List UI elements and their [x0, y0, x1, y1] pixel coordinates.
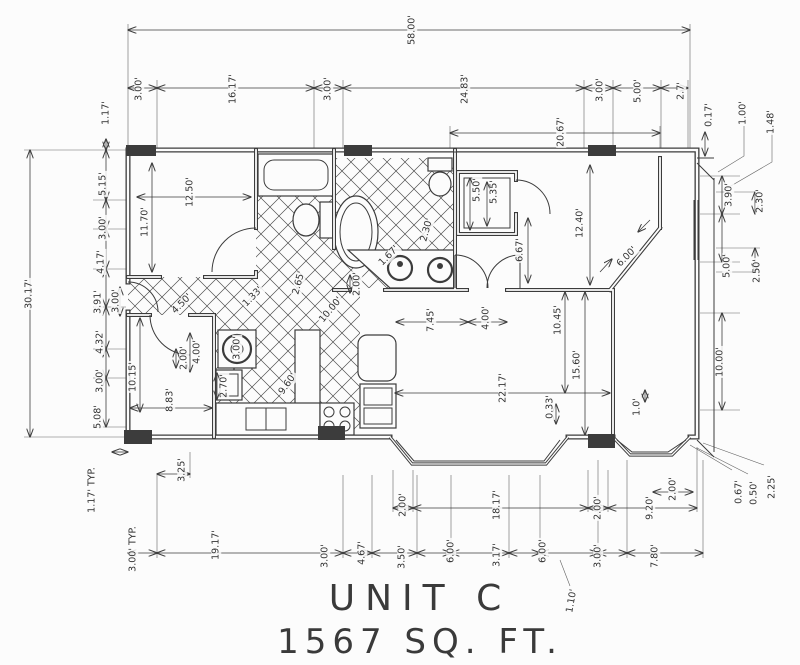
toilet [293, 202, 334, 238]
refrigerator [360, 384, 396, 428]
pantry-cabinet [216, 370, 242, 400]
roof-overhang-line [697, 158, 714, 457]
kitchen-island [358, 335, 396, 381]
floorplan-drawing [0, 0, 800, 665]
floorplan-sheet: 58.00'3.00'16.17'3.00'24.83'3.00'5.00'2.… [0, 0, 800, 665]
plan-title: UNIT C 1567 SQ. FT. [230, 578, 610, 662]
unit-area: 1567 SQ. FT. [230, 622, 610, 662]
unit-name: UNIT C [230, 578, 610, 619]
washer [218, 330, 256, 368]
bathtub [258, 154, 334, 196]
toilet [428, 158, 452, 196]
